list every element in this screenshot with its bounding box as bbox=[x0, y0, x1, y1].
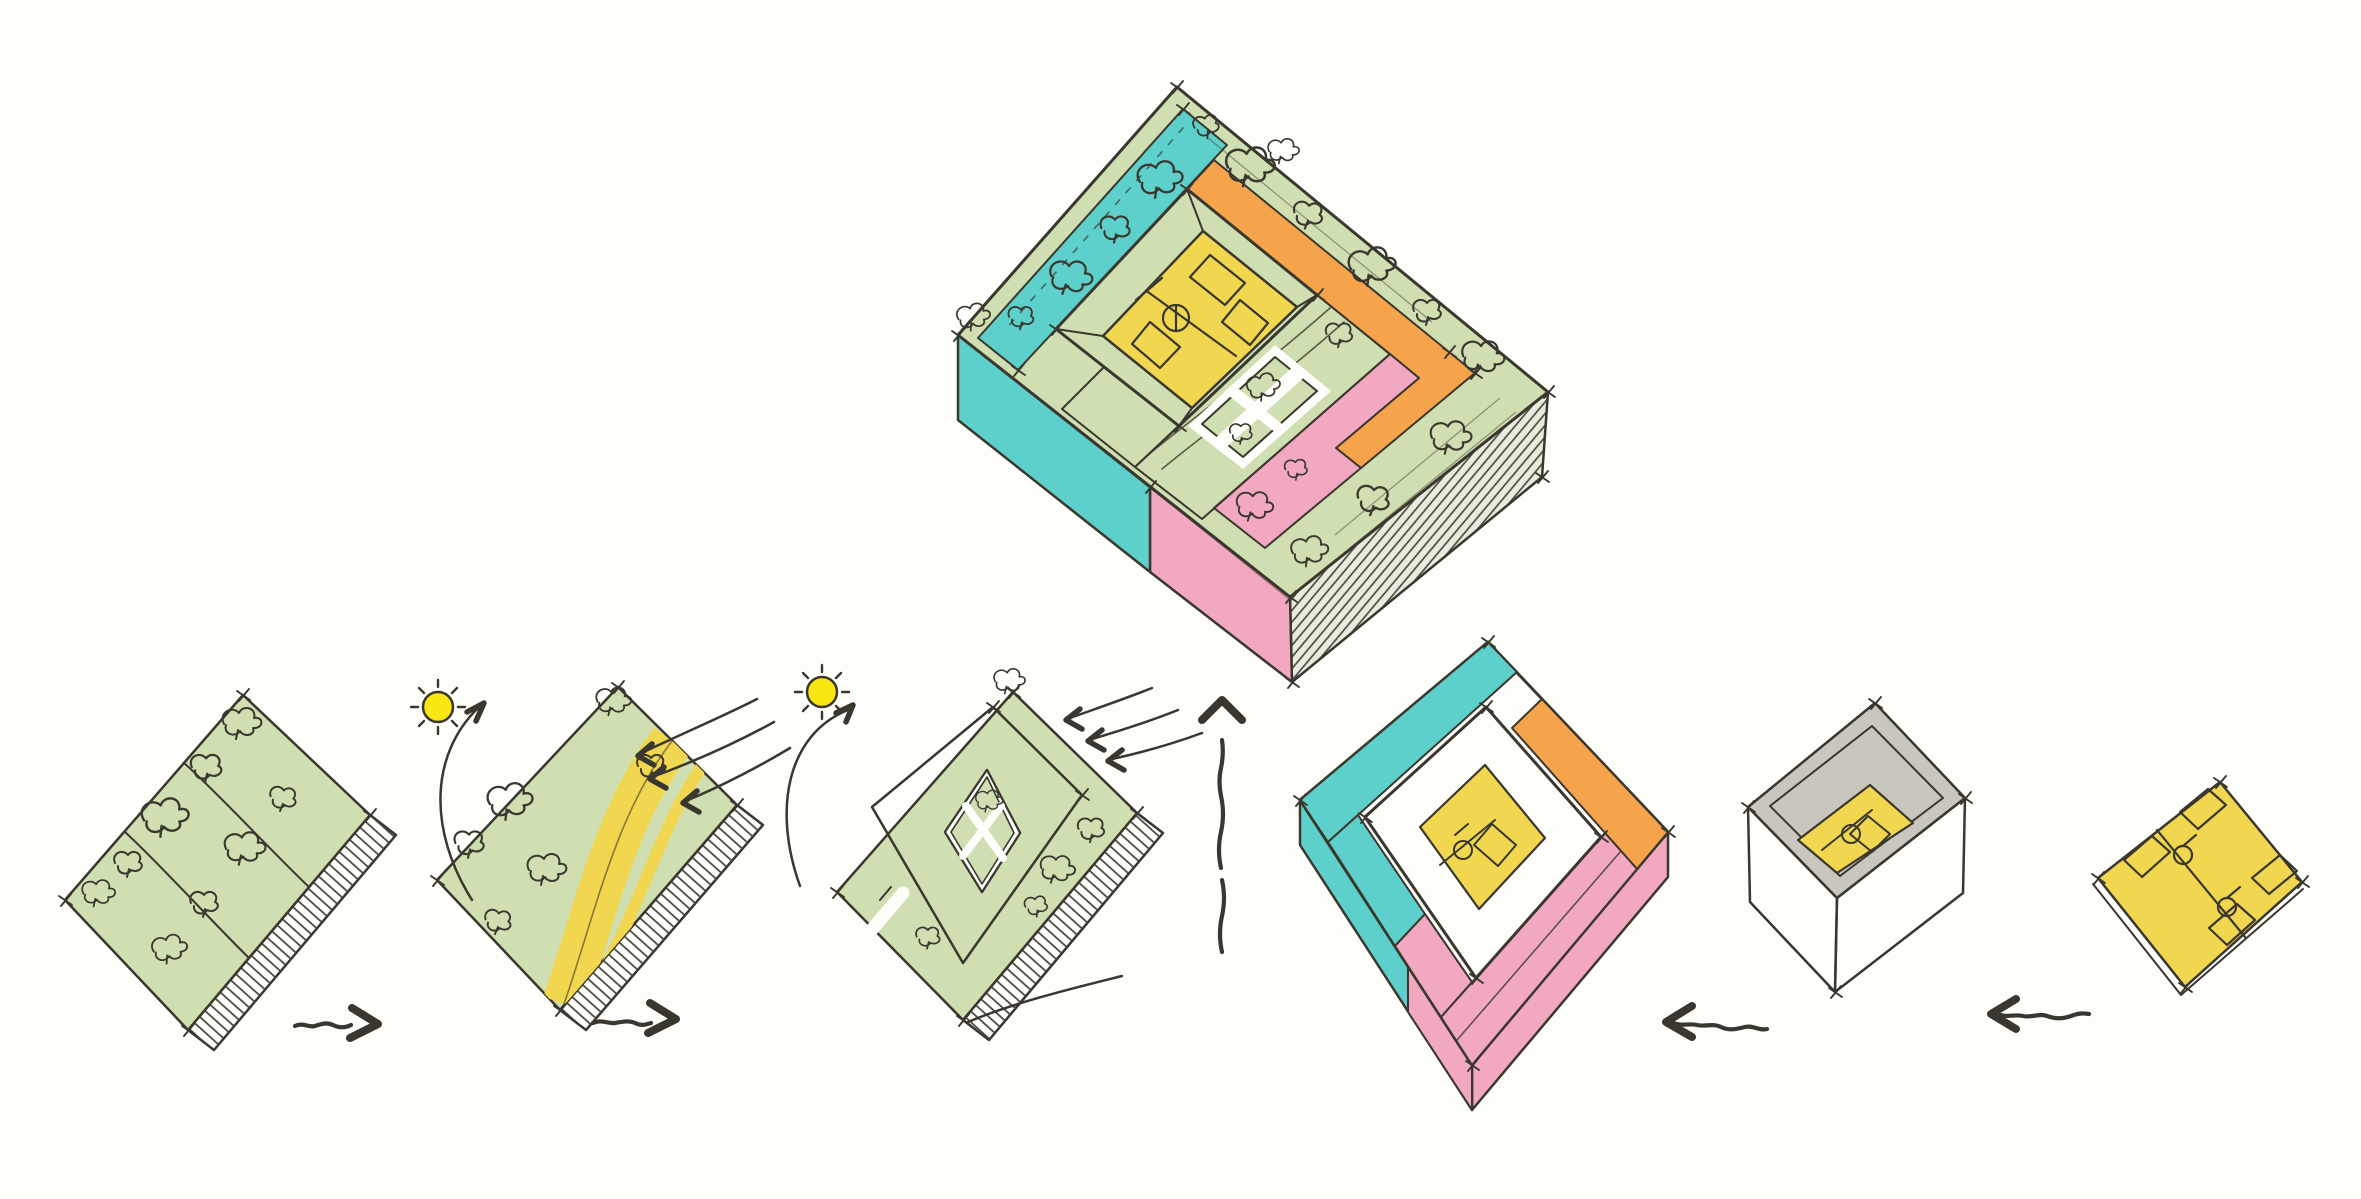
site-top bbox=[65, 695, 370, 1030]
sketch-page bbox=[0, 0, 2361, 1199]
arrow-right-icon bbox=[295, 1008, 378, 1038]
sketch-sun-wind-block bbox=[411, 680, 790, 1033]
concept-diagram bbox=[0, 0, 2361, 1199]
unit-plan-sheet bbox=[2098, 782, 2302, 987]
wind-arrow-icon bbox=[1088, 710, 1178, 750]
sketch-courtyard-building bbox=[787, 665, 1202, 1040]
sketch-exploded-concept-building bbox=[952, 81, 1555, 688]
sun-icon bbox=[411, 680, 465, 734]
wind-arrow-icon bbox=[1066, 688, 1152, 729]
arrow-left-icon bbox=[1991, 999, 2089, 1029]
sketch-unit-plan bbox=[2092, 776, 2309, 995]
arrow-up-icon bbox=[1202, 700, 1242, 952]
sketch-site-block bbox=[59, 689, 396, 1050]
sketch-inner-walls-block bbox=[1742, 697, 2089, 1029]
arrow-left-icon bbox=[1666, 1006, 1767, 1037]
sketch-colored-program-block bbox=[1294, 636, 1767, 1110]
sun-path-arrow-icon bbox=[787, 705, 853, 886]
wind-arrow-icon bbox=[1108, 733, 1202, 770]
